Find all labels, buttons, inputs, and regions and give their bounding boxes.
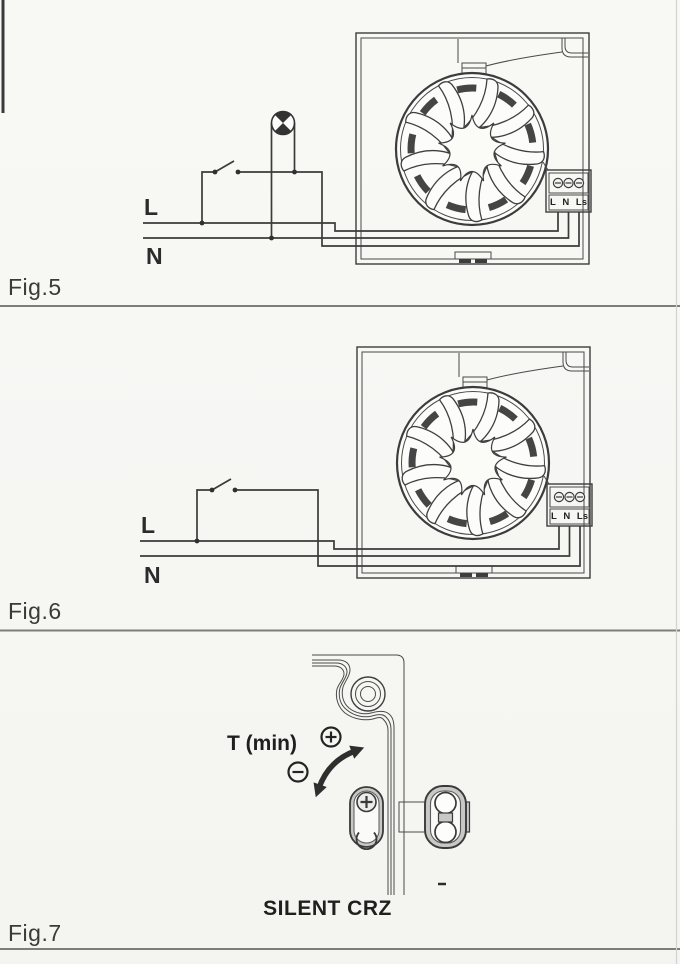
fig5-neutral-label: N <box>146 245 163 268</box>
fig6-live-label: L <box>141 514 155 537</box>
fig5-diagram <box>143 33 591 264</box>
fig6-junction-dots <box>195 488 238 544</box>
fig6-diagram <box>140 347 592 578</box>
fig5-junction-dots <box>200 170 297 241</box>
screw-icon <box>357 793 376 812</box>
terminal-label-l: L <box>551 511 557 522</box>
timer-adjust-label: T (min) <box>227 733 297 754</box>
fig5-terminal-labels: L N Ls <box>550 197 587 208</box>
fig5-live-label: L <box>144 196 158 219</box>
manual-page: L N L N Ls Fig.5 L N L N Ls Fig.6 T (min… <box>0 0 680 964</box>
terminal-label-ls: Ls <box>576 197 587 208</box>
fig6-caption: Fig.6 <box>8 600 62 623</box>
mounting-tab <box>399 802 425 832</box>
model-name-label: SILENT CRZ <box>235 897 420 921</box>
rotate-arrow-icon <box>319 751 355 788</box>
terminal-label-n: N <box>563 511 570 522</box>
fig6-neutral-label: N <box>144 564 161 587</box>
lamp-icon <box>272 111 295 238</box>
diagram-canvas <box>0 0 680 964</box>
fig5-caption: Fig.5 <box>8 276 62 299</box>
terminal-label-l: L <box>550 197 556 208</box>
timer-potentiometer <box>350 787 383 849</box>
connector-plug <box>425 786 470 848</box>
wire-switch-feed <box>202 172 215 223</box>
switch-icon <box>215 161 234 172</box>
terminal-label-ls: Ls <box>577 511 588 522</box>
minus-icon <box>289 763 308 782</box>
terminal-label-n: N <box>562 197 569 208</box>
fig7-caption: Fig.7 <box>8 922 62 945</box>
wire-switch-feed <box>197 490 212 541</box>
plus-icon <box>322 728 341 747</box>
fig6-terminal-labels: L N Ls <box>551 511 588 522</box>
fig7-diagram <box>289 655 470 895</box>
switch-icon <box>212 479 231 490</box>
corner-screw-boss <box>351 677 385 711</box>
